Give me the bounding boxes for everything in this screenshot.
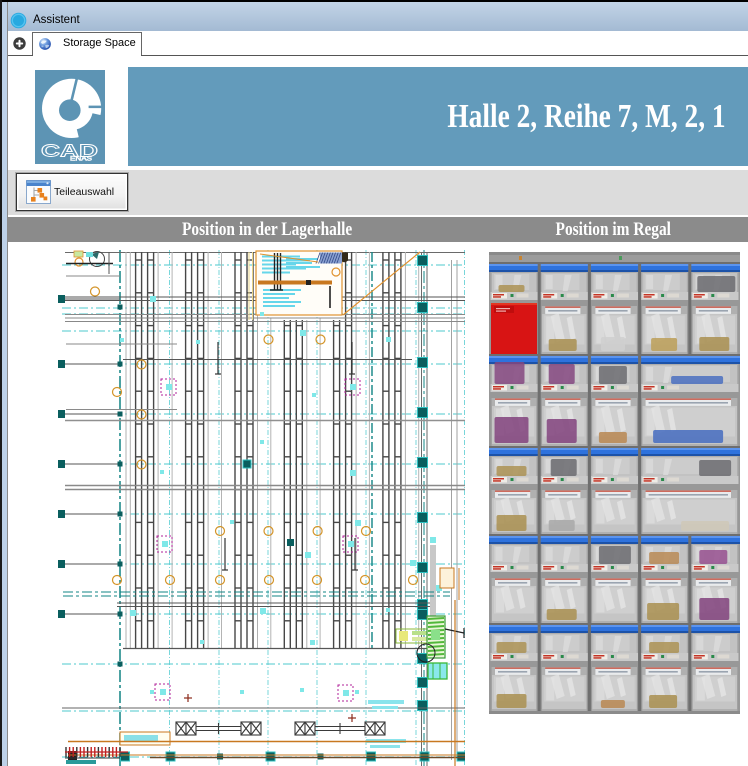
svg-text:ENAS: ENAS bbox=[70, 156, 93, 163]
